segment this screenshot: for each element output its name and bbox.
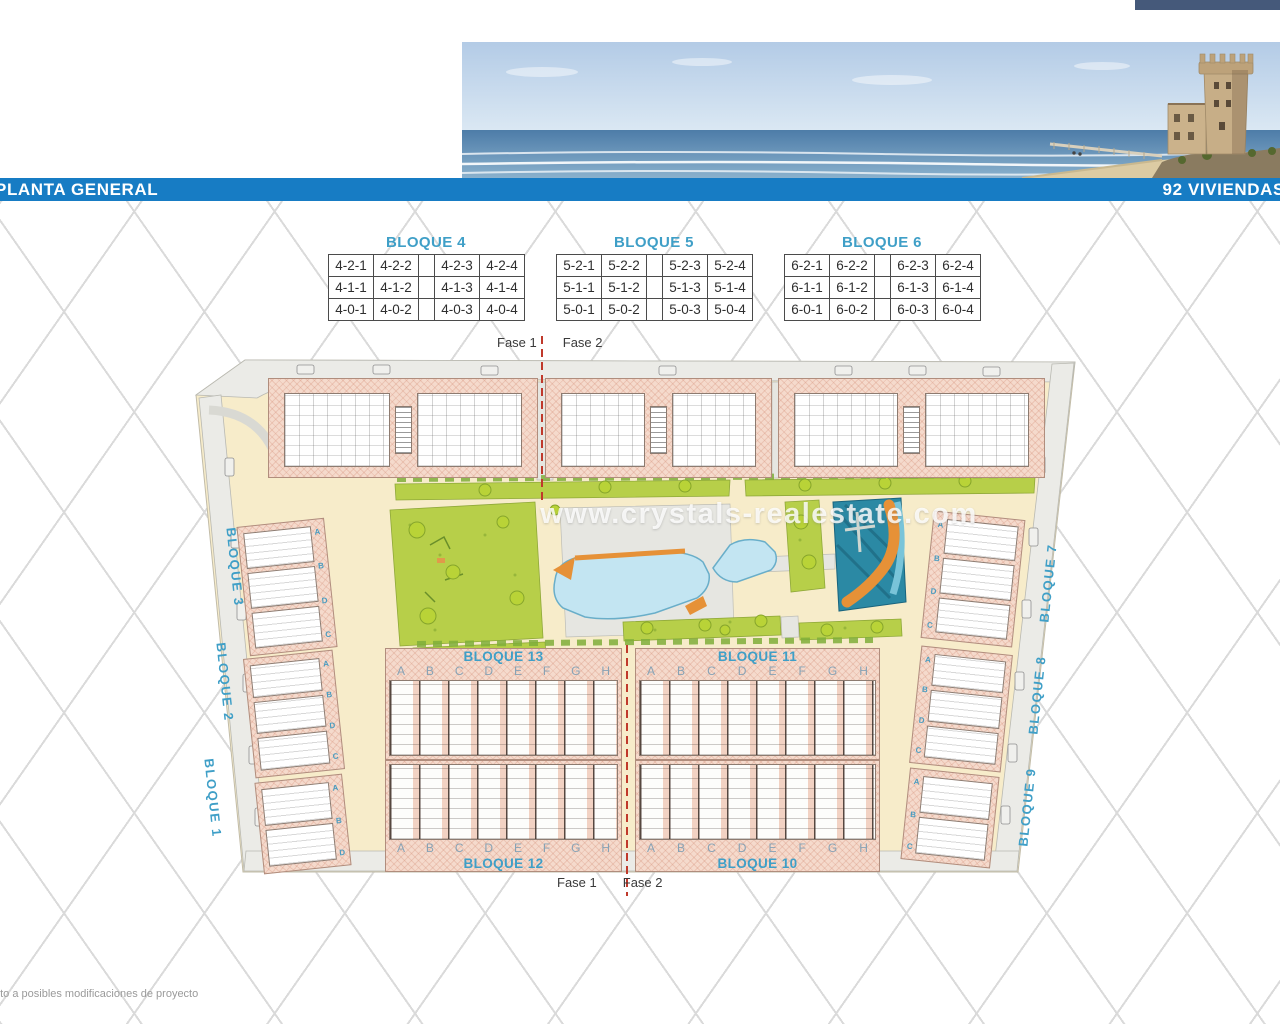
table-title: BLOQUE 4: [328, 234, 524, 251]
unit-letter: A: [397, 841, 405, 856]
phase-label: Fase 1: [557, 875, 597, 890]
unit-cell: 6-2-1: [785, 255, 830, 277]
unit-cell: 4-0-4: [480, 299, 525, 321]
table-gap-cell: [875, 255, 891, 277]
unit-cell: 6-2-2: [830, 255, 875, 277]
unit-letter: A: [332, 783, 339, 793]
floorplan-unit: [284, 393, 390, 467]
unit-letter: H: [859, 841, 868, 856]
site-plan: BLOQUE 13 ABCDEFGH BLOQUE 11 ABCDEFGH AB…: [185, 330, 1110, 910]
unit-cell: 4-2-3: [435, 255, 480, 277]
site-plan-page: PLANTA GENERAL 92 VIVIENDAS BLOQUE 4 4-2…: [0, 0, 1280, 1024]
block-label: BLOQUE 13: [386, 649, 621, 664]
table-gap-cell: [419, 299, 435, 321]
stairwell: [903, 406, 920, 454]
floorplan-unit: [252, 606, 323, 649]
townhouse-cluster-right: ABDC: [909, 646, 1013, 773]
floorplan-unit: [924, 726, 999, 765]
phase-labels-bottom: Fase 1 Fase 2: [557, 875, 663, 890]
unit-letter: B: [921, 685, 928, 695]
phase-labels-top: Fase 1 Fase 2: [497, 335, 603, 350]
unit-letter: F: [799, 841, 806, 856]
unit-letter: A: [647, 841, 655, 856]
unit-letter: E: [769, 841, 777, 856]
floorplan-unit: [925, 393, 1029, 467]
floorplan-unit: [417, 393, 523, 467]
table-gap-cell: [419, 255, 435, 277]
beach-banner-art: [462, 42, 1280, 178]
unit-letter: C: [927, 620, 934, 630]
table-gap-cell: [875, 277, 891, 299]
unit-letter: C: [915, 745, 922, 755]
watermark: www.crystals-realestate.com: [453, 498, 1065, 531]
unit-cell: 6-0-2: [830, 299, 875, 321]
unit-letter: B: [426, 664, 434, 679]
floorplan-unit: [794, 393, 898, 467]
unit-table-bloque-6: BLOQUE 6 6-2-16-2-26-2-36-2-4 6-1-16-1-2…: [784, 234, 980, 321]
unit-letter: C: [707, 841, 716, 856]
unit-letter: B: [426, 841, 434, 856]
townhouse-cluster-left: ABDC: [236, 518, 337, 656]
unit-cell: 5-1-3: [663, 277, 708, 299]
floorplan-unit: [928, 690, 1003, 729]
unit-letter: D: [930, 587, 937, 597]
unit-letter: E: [514, 664, 522, 679]
floorplan-unit: [919, 776, 992, 820]
unit-letter: A: [913, 777, 920, 787]
floorplan-unit: [935, 597, 1010, 640]
floorplan-unit: [250, 658, 323, 698]
unit-letter: C: [906, 842, 913, 852]
apartment-block-4: [268, 378, 538, 478]
unit-cell: 5-0-4: [708, 299, 753, 321]
unit-cell: 6-2-4: [936, 255, 981, 277]
unit-table-bloque-4: BLOQUE 4 4-2-14-2-24-2-34-2-4 4-1-14-1-2…: [328, 234, 524, 321]
townhouse-cluster-right: ABC: [900, 768, 999, 869]
floorplan-unit: [243, 526, 314, 569]
unit-letter: D: [738, 664, 747, 679]
unit-letter: E: [514, 841, 522, 856]
floorplan-unit: [672, 393, 756, 467]
unit-letter: D: [484, 841, 493, 856]
phase-label: Fase 2: [623, 875, 663, 890]
unit-cell: 4-0-1: [329, 299, 374, 321]
unit-cell: 6-1-2: [830, 277, 875, 299]
unit-letter: C: [707, 664, 716, 679]
unit-cell: 6-0-1: [785, 299, 830, 321]
unit-cell: 6-1-3: [891, 277, 936, 299]
unit-letter: A: [323, 659, 330, 669]
block-label: BLOQUE 11: [636, 649, 879, 664]
phase-label: Fase 1: [497, 335, 537, 350]
table-title: BLOQUE 6: [784, 234, 980, 251]
floorplan-unit: [247, 566, 318, 609]
unit-letter: B: [335, 815, 342, 825]
table-gap-cell: [419, 277, 435, 299]
unit-letter: H: [601, 664, 610, 679]
unit-letter: D: [339, 848, 346, 858]
unit-cell: 4-2-1: [329, 255, 374, 277]
unit-cell: 5-2-2: [602, 255, 647, 277]
unit-cell: 5-0-2: [602, 299, 647, 321]
table-grid: 5-2-15-2-25-2-35-2-4 5-1-15-1-25-1-35-1-…: [556, 254, 753, 321]
unit-letter: D: [484, 664, 493, 679]
townhouse-block-13: BLOQUE 13 ABCDEFGH: [385, 648, 622, 760]
townhouse-block-12: ABCDEFGH BLOQUE 12: [385, 760, 622, 872]
floorplan-unit: [261, 782, 332, 826]
townhouse-block-10: ABCDEFGH BLOQUE 10: [635, 760, 880, 872]
floorplan-unit: [561, 393, 645, 467]
viviendas-count: 92 VIVIENDAS: [1163, 180, 1280, 200]
unit-letter: D: [329, 721, 336, 731]
unit-cell: 5-1-4: [708, 277, 753, 299]
beach-banner: [462, 42, 1280, 178]
unit-letter: A: [314, 527, 321, 537]
sky: [462, 42, 1280, 134]
unit-letter: D: [321, 596, 328, 606]
townhouse-cluster-right: ABDC: [921, 511, 1026, 648]
unit-cell: 5-0-3: [663, 299, 708, 321]
unit-letter: C: [455, 841, 464, 856]
unit-letter: G: [571, 841, 580, 856]
row-letters: ABCDEFGH: [386, 664, 621, 679]
unit-cell: 4-0-2: [374, 299, 419, 321]
townhouse-cluster-left: ABD: [254, 774, 351, 875]
unit-letter: H: [601, 841, 610, 856]
floorplan-unit: [931, 654, 1006, 693]
corner-strip: [1135, 0, 1280, 10]
unit-cell: 4-1-4: [480, 277, 525, 299]
stairwell: [650, 406, 667, 454]
floorplan-unit: [257, 731, 330, 771]
block-label: BLOQUE 10: [636, 856, 879, 871]
unit-letter: A: [647, 664, 655, 679]
unit-cell: 5-2-4: [708, 255, 753, 277]
floorplan-unit: [254, 695, 327, 735]
unit-cell: 5-0-1: [557, 299, 602, 321]
unit-letter: B: [677, 841, 685, 856]
townhouse-units: [639, 680, 876, 756]
unit-cell: 6-2-3: [891, 255, 936, 277]
title-bar: PLANTA GENERAL 92 VIVIENDAS: [0, 178, 1280, 201]
unit-letter: A: [397, 664, 405, 679]
table-gap-cell: [875, 299, 891, 321]
unit-cell: 5-1-1: [557, 277, 602, 299]
page-title: PLANTA GENERAL: [0, 180, 158, 200]
unit-table-bloque-5: BLOQUE 5 5-2-15-2-25-2-35-2-4 5-1-15-1-2…: [556, 234, 752, 321]
table-grid: 4-2-14-2-24-2-34-2-4 4-1-14-1-24-1-34-1-…: [328, 254, 525, 321]
unit-cell: 5-2-1: [557, 255, 602, 277]
unit-letter: D: [918, 715, 925, 725]
unit-letter: F: [799, 664, 806, 679]
stairwell: [395, 406, 412, 454]
townhouse-units: [639, 764, 876, 840]
unit-cell: 4-2-2: [374, 255, 419, 277]
floorplan-unit: [915, 817, 988, 861]
unit-cell: 4-1-3: [435, 277, 480, 299]
apartment-block-6: [778, 378, 1045, 478]
unit-letter: G: [828, 841, 837, 856]
unit-letter: B: [318, 561, 325, 571]
unit-letter: C: [325, 630, 332, 640]
unit-letter: G: [571, 664, 580, 679]
unit-letter: A: [925, 655, 932, 665]
townhouse-block-11: BLOQUE 11 ABCDEFGH: [635, 648, 880, 760]
table-grid: 6-2-16-2-26-2-36-2-4 6-1-16-1-26-1-36-1-…: [784, 254, 981, 321]
unit-letter: B: [910, 809, 917, 819]
unit-letter: B: [677, 664, 685, 679]
unit-letter: D: [738, 841, 747, 856]
table-gap-cell: [647, 299, 663, 321]
unit-cell: 6-0-3: [891, 299, 936, 321]
phase-label: Fase 2: [563, 335, 603, 350]
unit-letter: C: [455, 664, 464, 679]
row-letters: ABCDEFGH: [636, 841, 879, 856]
unit-cell: 6-1-1: [785, 277, 830, 299]
unit-cell: 6-0-4: [936, 299, 981, 321]
townhouse-units: [389, 680, 618, 756]
unit-letter: C: [332, 752, 339, 762]
unit-letter: B: [326, 690, 333, 700]
footer-note: eto a posibles modificaciones de proyect…: [0, 988, 198, 1000]
unit-letter: F: [543, 664, 550, 679]
unit-cell: 4-2-4: [480, 255, 525, 277]
unit-cell: 6-1-4: [936, 277, 981, 299]
row-letters: ABCDEFGH: [386, 841, 621, 856]
unit-letter: F: [543, 841, 550, 856]
unit-cell: 4-1-1: [329, 277, 374, 299]
unit-letter: E: [769, 664, 777, 679]
townhouse-units: [389, 764, 618, 840]
block-label: BLOQUE 12: [386, 856, 621, 871]
unit-cell: 5-1-2: [602, 277, 647, 299]
floorplan-unit: [939, 558, 1014, 601]
floorplan-unit: [265, 823, 336, 867]
unit-letter: G: [828, 664, 837, 679]
table-gap-cell: [647, 255, 663, 277]
unit-cell: 5-2-3: [663, 255, 708, 277]
townhouse-cluster-left: ABDC: [243, 650, 345, 779]
unit-letter: B: [934, 553, 941, 563]
apartment-block-5: [545, 378, 772, 478]
unit-cell: 4-1-2: [374, 277, 419, 299]
table-title: BLOQUE 5: [556, 234, 752, 251]
table-gap-cell: [647, 277, 663, 299]
unit-cell: 4-0-3: [435, 299, 480, 321]
row-letters: ABCDEFGH: [636, 664, 879, 679]
unit-letter: H: [859, 664, 868, 679]
